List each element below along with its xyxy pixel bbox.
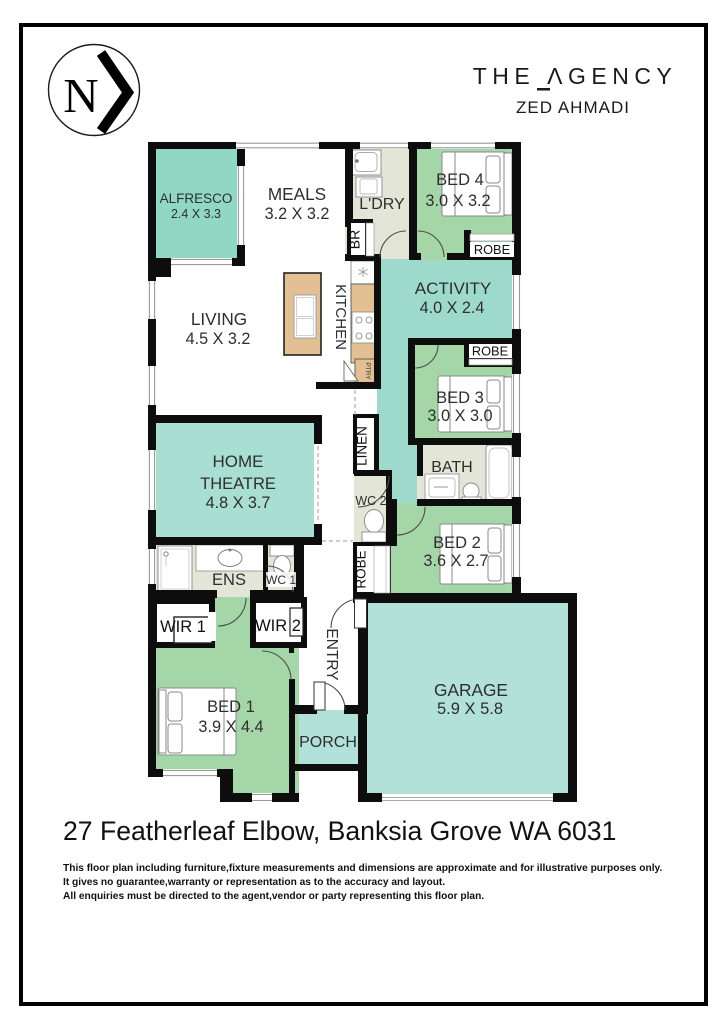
svg-text:BED 2: BED 2	[433, 534, 481, 552]
svg-text:BR: BR	[347, 230, 363, 249]
svg-text:This floor plan including furn: This floor plan including furniture,fixt…	[63, 863, 662, 874]
svg-text:3.6 X 2.7: 3.6 X 2.7	[423, 552, 488, 570]
svg-text:WIR 1: WIR 1	[160, 618, 206, 636]
svg-text:ENS: ENS	[212, 571, 246, 589]
svg-text:3.2 X 3.2: 3.2 X 3.2	[265, 205, 330, 223]
svg-text:BED 3: BED 3	[436, 389, 484, 407]
svg-text:LIVING: LIVING	[191, 309, 247, 329]
svg-text:ZED AHMADI: ZED AHMADI	[516, 98, 630, 117]
svg-text:4.0 X 2.4: 4.0 X 2.4	[420, 299, 485, 317]
svg-text:HOME: HOME	[213, 452, 264, 471]
svg-text:27 Featherleaf Elbow, Banksia: 27 Featherleaf Elbow, Banksia Grove WA 6…	[63, 816, 616, 846]
svg-text:THE ΛGENCY: THE ΛGENCY	[473, 63, 678, 89]
svg-text:ENTRY: ENTRY	[323, 628, 340, 680]
svg-text:2.4 X 3.3: 2.4 X 3.3	[171, 207, 221, 221]
svg-text:PORCH: PORCH	[299, 734, 357, 751]
svg-text:PTRY: PTRY	[364, 362, 371, 380]
svg-text:BED 1: BED 1	[207, 698, 255, 716]
svg-text:ALFRESCO: ALFRESCO	[160, 191, 233, 206]
svg-text:ROBE: ROBE	[354, 550, 369, 588]
svg-text:It gives no guarantee,warranty: It gives no guarantee,warranty or repres…	[63, 877, 445, 888]
svg-text:WC 2: WC 2	[355, 494, 386, 508]
svg-text:THEATRE: THEATRE	[200, 475, 276, 493]
svg-text:GARAGE: GARAGE	[434, 680, 508, 700]
svg-text:5.9 X 5.8: 5.9 X 5.8	[437, 700, 503, 718]
svg-text:BATH: BATH	[431, 459, 472, 476]
svg-text:WC 1: WC 1	[266, 573, 296, 587]
svg-text:ACTIVITY: ACTIVITY	[415, 279, 492, 298]
svg-text:4.5 X 3.2: 4.5 X 3.2	[186, 330, 251, 348]
svg-text:MEALS: MEALS	[268, 184, 326, 204]
svg-text:BED 4: BED 4	[436, 171, 484, 189]
svg-text:3.0 X 3.0: 3.0 X 3.0	[427, 407, 492, 425]
svg-text:4.8 X 3.7: 4.8 X 3.7	[206, 494, 271, 512]
svg-text:ROBE: ROBE	[472, 344, 508, 359]
svg-text:N: N	[63, 68, 98, 123]
svg-text:3.9 X 4.4: 3.9 X 4.4	[198, 718, 263, 736]
svg-text:ROBE: ROBE	[474, 242, 510, 257]
svg-text:LINEN: LINEN	[355, 426, 370, 466]
svg-text:L'DRY: L'DRY	[359, 196, 405, 213]
svg-text:WIR 2: WIR 2	[255, 617, 301, 635]
svg-text:3.0 X 3.2: 3.0 X 3.2	[425, 192, 490, 210]
svg-text:All enquiries must be directed: All enquiries must be directed to the ag…	[63, 891, 484, 902]
svg-text:KITCHEN: KITCHEN	[332, 284, 349, 350]
